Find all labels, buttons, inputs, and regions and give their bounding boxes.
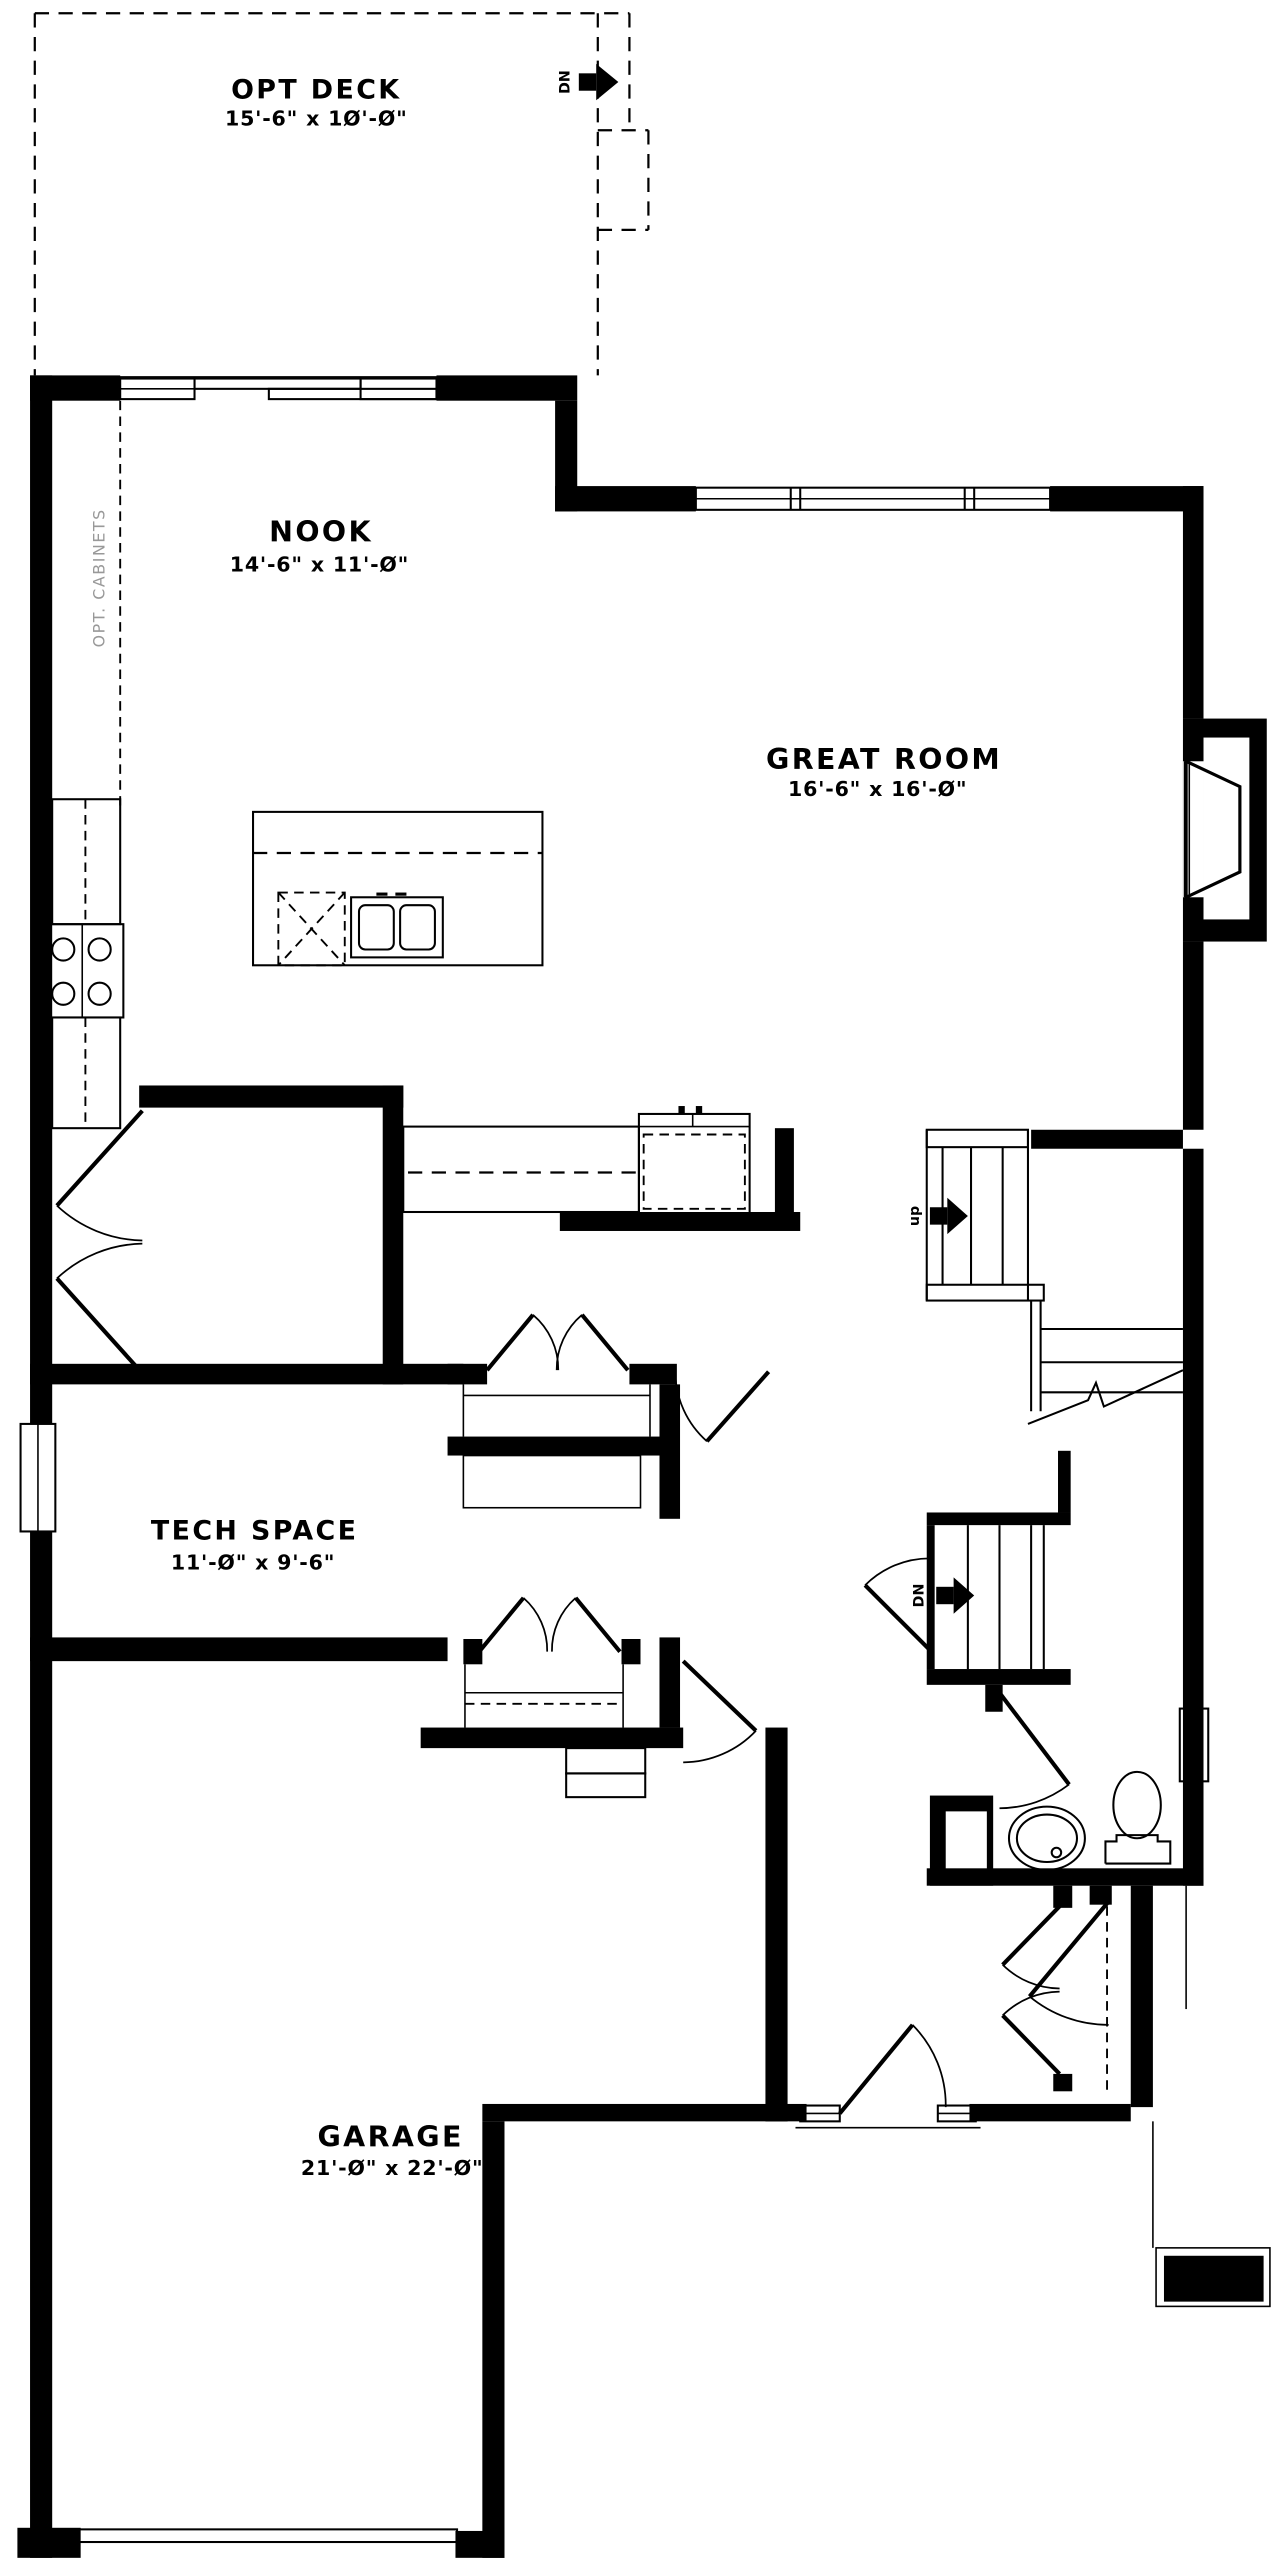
stairs-lower-run — [1028, 1301, 1183, 1424]
nook-dims: 14'-6" x 11'-Ø" — [230, 552, 409, 576]
foyer-windows — [795, 2106, 980, 2128]
deck-down-arrow-icon — [579, 64, 619, 100]
stairs-dn-label: DN — [912, 1584, 928, 1608]
foyer-hall-door — [1030, 1902, 1109, 2025]
tech-bench-cabinet — [463, 1456, 640, 1508]
foyer-closet-doors — [1003, 1906, 1060, 2074]
stairs-down — [968, 1525, 1044, 1669]
tech-space-window — [21, 1424, 56, 1532]
garage-door — [77, 2529, 457, 2542]
front-door — [840, 2025, 946, 2114]
opt-deck-label: OPT DECK — [231, 75, 401, 106]
porch — [1153, 1886, 1270, 2307]
garage-entry-door — [683, 1661, 756, 1762]
garage-steps — [566, 1748, 645, 1797]
bathroom-door — [999, 1693, 1069, 1808]
floor-plan-page: OPT DECK 15'-6" x 1Ø'-Ø" DN NOOK 14'-6" … — [0, 0, 1281, 2560]
toilet — [1105, 1772, 1170, 1864]
opt-deck-dims: 15'-6" x 1Ø'-Ø" — [225, 107, 408, 131]
hall-door — [675, 1372, 768, 1442]
stairs-up-label: up — [907, 1206, 923, 1226]
deck-dn-label: DN — [557, 70, 573, 94]
range-cooktop — [43, 924, 124, 1017]
opt-cabinets-label: OPT. CABINETS — [89, 508, 108, 647]
hall-closet-1 — [463, 1384, 650, 1436]
bath-closet — [930, 1796, 993, 1886]
refrigerator — [639, 1106, 750, 1218]
bath-sink — [1009, 1807, 1085, 1870]
great-room-window — [696, 488, 1050, 510]
garage-dims: 21'-Ø" x 22'-Ø" — [301, 2156, 484, 2180]
double-sink — [351, 894, 443, 957]
fireplace — [1183, 719, 1267, 942]
mud-closet-shelf — [465, 1664, 623, 1727]
hall-closet-1-doors — [487, 1315, 628, 1370]
exterior-walls — [17, 375, 1203, 2557]
opt-deck-outline — [35, 13, 649, 375]
hall-counter — [403, 1127, 639, 1212]
tech-space-label: TECH SPACE — [151, 1515, 358, 1546]
mud-closet-doors — [479, 1598, 620, 1652]
great-room-label: GREAT ROOM — [766, 743, 1002, 776]
kitchen-cabinets — [52, 799, 120, 1128]
nook-windows-and-slider — [117, 377, 440, 399]
pantry-double-doors — [57, 1111, 142, 1374]
garage-label: GARAGE — [317, 2121, 463, 2154]
tech-space-dims: 11'-Ø" x 9'-6" — [171, 1550, 335, 1574]
kitchen-island — [253, 812, 542, 965]
stairs-up-arrow-icon — [930, 1198, 968, 1234]
nook-label: NOOK — [269, 515, 373, 548]
great-room-dims: 16'-6" x 16'-Ø" — [788, 777, 967, 801]
floor-plan-drawing: OPT DECK 15'-6" x 1Ø'-Ø" DN NOOK 14'-6" … — [0, 0, 1281, 2560]
